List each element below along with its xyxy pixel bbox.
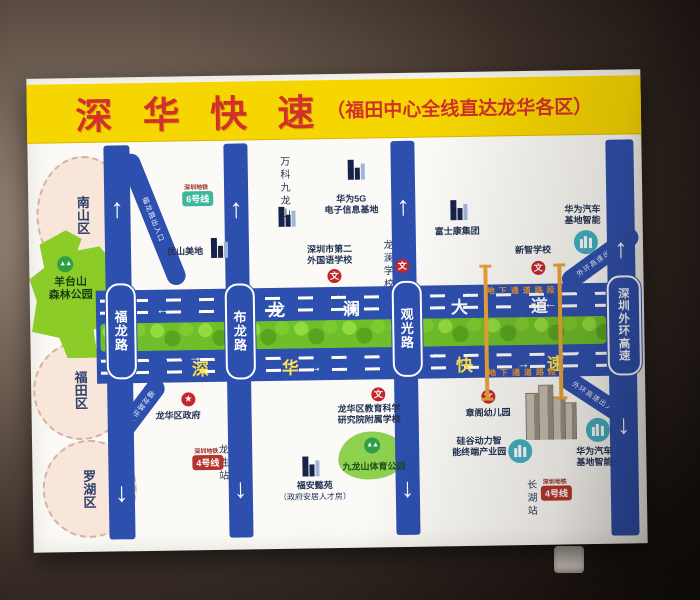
poi-sfls-line1: 深圳市第二	[307, 244, 352, 256]
building-icon	[211, 238, 229, 258]
road-name-char: 华	[282, 354, 299, 379]
capsule-bulong-label: 布龙路	[232, 310, 248, 352]
poi-huawei-auto-line1: 华为汽车	[576, 446, 612, 458]
building-render	[564, 402, 577, 439]
poi-silicon-line1: 硅谷动力智	[452, 435, 506, 447]
road-name-char: 龙	[268, 296, 285, 321]
building-icon	[450, 200, 468, 220]
metro-operator-label: 深圳地铁	[194, 446, 218, 455]
poi-sfls-line2: 外国语学校	[307, 255, 352, 267]
metro-line4-badge: 4号线	[192, 455, 223, 470]
poi-fuan-line2: （政府安居人才房）	[279, 491, 351, 503]
metro-line6-badge: 6号线	[182, 191, 213, 206]
poi-xinzhi-school: 新智学校	[515, 245, 551, 257]
arrow-up-icon: ↑	[396, 193, 410, 219]
metro-line4-badge: 4号线	[541, 485, 572, 500]
building-icon	[278, 207, 296, 227]
metro-operator-label: 深圳地铁	[184, 182, 208, 191]
poi-foxconn-group: 富士康集团	[435, 226, 480, 238]
lane-arrow-left-icon: ←	[156, 304, 169, 316]
government-star-icon: ★	[181, 392, 195, 406]
wall-socket	[554, 546, 584, 573]
district-label-nanshan: 南山区	[76, 196, 92, 235]
ramp-northwest-label: 福龙路出入口	[140, 195, 167, 243]
school-badge-icon: 文	[395, 259, 409, 273]
road-name-char: 大	[451, 293, 468, 318]
school-badge-icon: 文	[371, 387, 385, 401]
arrow-down-icon: ↓	[401, 475, 415, 501]
building-icon	[302, 456, 320, 476]
district-label-futian: 福田区	[73, 371, 89, 410]
capsule-guanguang-label: 观光路	[399, 308, 415, 350]
arrow-down-icon: ↓	[234, 475, 248, 501]
school-badge-icon: 文	[531, 261, 545, 275]
poi-zhangge-kindergarten: 章阁幼儿园	[466, 407, 511, 419]
poi-huawei-5g-base: 华为5G 电子信息基地	[324, 193, 378, 216]
capsule-bulong: 布龙路	[225, 283, 257, 379]
capsule-outer-ring: 深圳外环高速	[606, 275, 642, 376]
underground-label-bottom: 地下通道路段	[488, 367, 560, 379]
industry-icon	[508, 439, 532, 463]
capsule-fulong-label: 福龙路	[113, 310, 129, 352]
lane-arrow-right-icon: →	[309, 361, 322, 373]
poi-longhua-edu-research-school: 龙华区教育科学 研究院附属学校	[337, 403, 400, 426]
poi-huawei-auto-base-top: 华为汽车 基地智能	[564, 204, 600, 227]
poi-huawei-auto-line1: 华为汽车	[564, 204, 600, 216]
lane-arrow-right-icon: →	[427, 347, 440, 359]
poi-no2-foreign-language-school: 深圳市第二 外国语学校	[307, 244, 352, 267]
industry-icon	[586, 418, 610, 442]
yangtai-park-line1: 羊台山	[35, 276, 105, 290]
poi-silicon-line2: 能终端产业园	[452, 446, 506, 458]
lane-marking	[101, 352, 607, 363]
photo-of-lightbox-sign: 深 华 快 速 （福田中心全线直达龙华各区） 南山区 福田区 罗湖区 ▲▲ 羊台…	[0, 0, 700, 600]
arrow-down-icon: ↓	[617, 411, 631, 437]
arrow-up-icon: ↑	[614, 235, 628, 261]
lane-arrow-right-icon: →	[569, 345, 582, 357]
poi-fuan-yiyuan: 福安懿苑 （政府安居人才房）	[279, 480, 351, 503]
arrow-down-icon: ↓	[115, 479, 129, 505]
jiulongshan-sports-park-label: 九龙山体育公园	[342, 459, 405, 473]
school-badge-icon: 文	[327, 269, 341, 283]
poi-huawei-5g-line1: 华为5G	[324, 193, 378, 205]
poi-edu-line2: 研究院附属学校	[338, 414, 401, 426]
sign-title: 深 华 快 速	[75, 82, 325, 140]
sign-subtitle: （福田中心全线直达龙华各区）	[326, 91, 592, 122]
capsule-guanguang: 观光路	[392, 281, 424, 377]
poi-huawei-auto-line2: 基地智能	[576, 457, 612, 469]
metro-operator-label: 深圳地铁	[543, 476, 567, 485]
arrow-up-icon: ↑	[229, 195, 243, 221]
sign-header: 深 华 快 速 （福田中心全线直达龙华各区）	[26, 75, 641, 143]
poi-youshan-meidi: 优山美地	[167, 246, 203, 258]
poi-longhua-government: 龙华区政府	[156, 410, 201, 422]
poi-silicon-valley-industrial-park: 硅谷动力智 能终端产业园	[452, 435, 506, 458]
underground-label-top: 地下通道路段	[487, 285, 559, 297]
district-label-luohu: 罗湖区	[82, 469, 98, 508]
road-name-char: 深	[192, 355, 209, 380]
building-icon	[348, 160, 366, 180]
poi-huawei-5g-line2: 电子信息基地	[324, 204, 378, 216]
poi-huawei-auto-base-bottom: 华为汽车 基地智能	[576, 446, 612, 469]
capsule-fulong: 福龙路	[106, 283, 138, 379]
capsule-outer-ring-label: 深圳外环高速	[616, 288, 632, 363]
poi-huawei-auto-line2: 基地智能	[565, 215, 601, 227]
arrow-up-icon: ↑	[110, 195, 124, 221]
map-sign-board: 深 华 快 速 （福田中心全线直达龙华各区） 南山区 福田区 罗湖区 ▲▲ 羊台…	[26, 69, 647, 553]
road-name-char: 澜	[343, 295, 360, 320]
station-changhu: 长湖站	[525, 479, 541, 518]
road-name-char: 快	[456, 351, 473, 376]
